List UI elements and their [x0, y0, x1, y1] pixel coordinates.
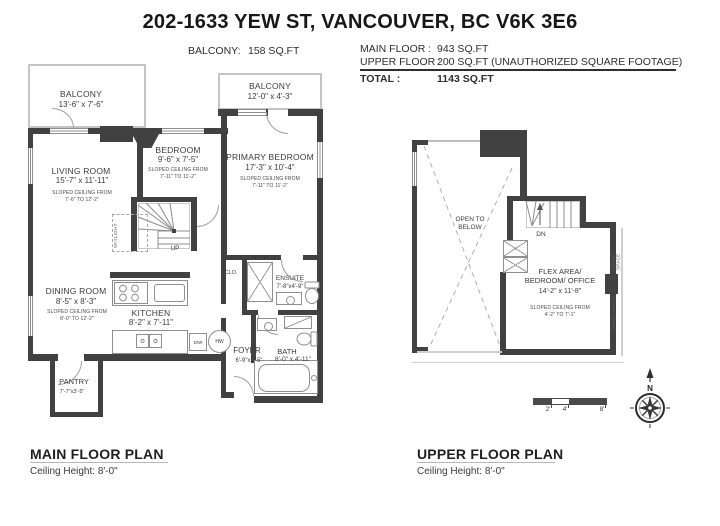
railing-line [428, 140, 482, 142]
scale-tick [568, 404, 569, 408]
room-note: 4'-2" TO 7'-1" [545, 313, 576, 318]
open-to-below-x [415, 143, 525, 353]
upper-floor-heading: UPPER FLOOR PLAN [417, 446, 563, 462]
compass-north-label: N [647, 384, 653, 393]
open-to-below-label: OPEN TO [455, 217, 484, 224]
crawl-space-label: CRAWL SPACE [612, 296, 617, 332]
edge-line [412, 362, 623, 363]
open-to-below-label: BELOW [458, 225, 481, 232]
scale-bar [533, 398, 607, 405]
wall [586, 222, 612, 228]
scale-segment [552, 399, 569, 404]
room-name: BEDROOM/ OFFICE [525, 277, 595, 285]
edge-line [621, 228, 623, 356]
scale-segment [569, 399, 606, 404]
compass-icon: N [628, 366, 672, 428]
upper-floor-ceiling-height: Ceiling Height: 8'-0" [417, 466, 505, 477]
room-name: FLEX AREA/ [539, 268, 582, 276]
main-floor-ceiling-height: Ceiling Height: 8'-0" [30, 466, 118, 477]
scale-label: 2' [546, 407, 551, 414]
heading-underline [417, 462, 555, 463]
scale-segment [534, 399, 552, 404]
scale-label: 8' [600, 407, 605, 414]
solid-block [605, 274, 618, 294]
scale-label: 4' [563, 407, 568, 414]
scale-tick [605, 404, 606, 408]
scale-tick [551, 404, 552, 408]
heading-underline [30, 462, 168, 463]
main-floor-heading: MAIN FLOOR PLAN [30, 446, 164, 462]
crawl-space-label: CRAWL SPACE [612, 240, 621, 270]
room-note: SLOPED CEILING FROM [530, 306, 590, 311]
floorplan-page: 202-1633 YEW ST, VANCOUVER, BC V6K 3E6 B… [0, 0, 720, 526]
stairs-down-label: DN [536, 232, 545, 239]
stairs-down-icon [526, 201, 580, 228]
room-dims: 14'-2" x 11'-8" [539, 288, 582, 295]
